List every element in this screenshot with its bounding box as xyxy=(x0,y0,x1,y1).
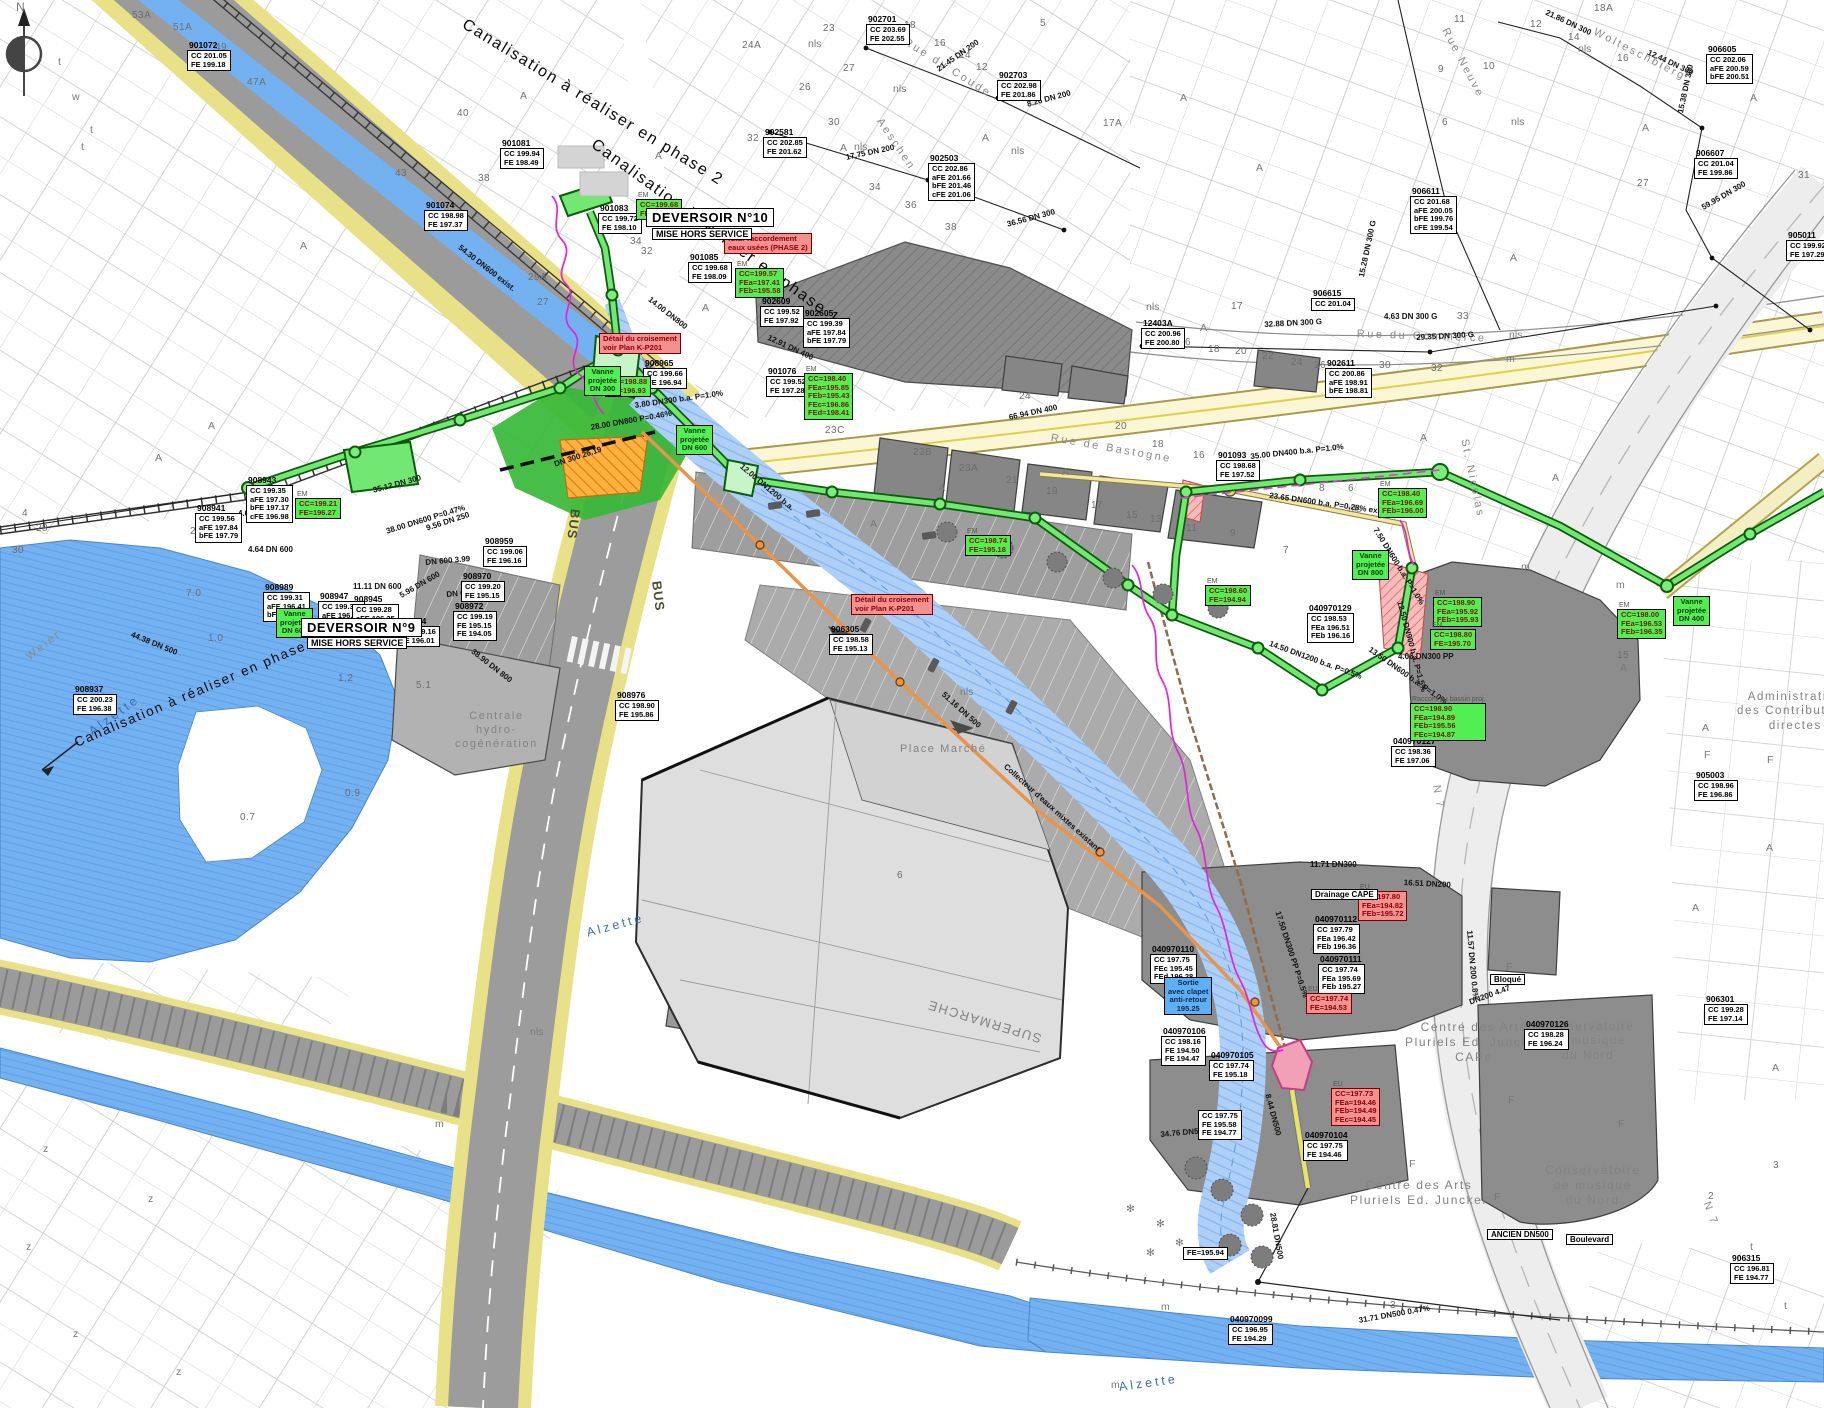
junction-structure-b xyxy=(724,460,758,496)
map-canvas xyxy=(0,0,1824,1408)
building-conservatoire xyxy=(1478,995,1658,1224)
supermarket-building xyxy=(636,698,1068,1118)
engineering-site-plan: Canalisation à réaliser en phase 2Canali… xyxy=(0,0,1824,1408)
